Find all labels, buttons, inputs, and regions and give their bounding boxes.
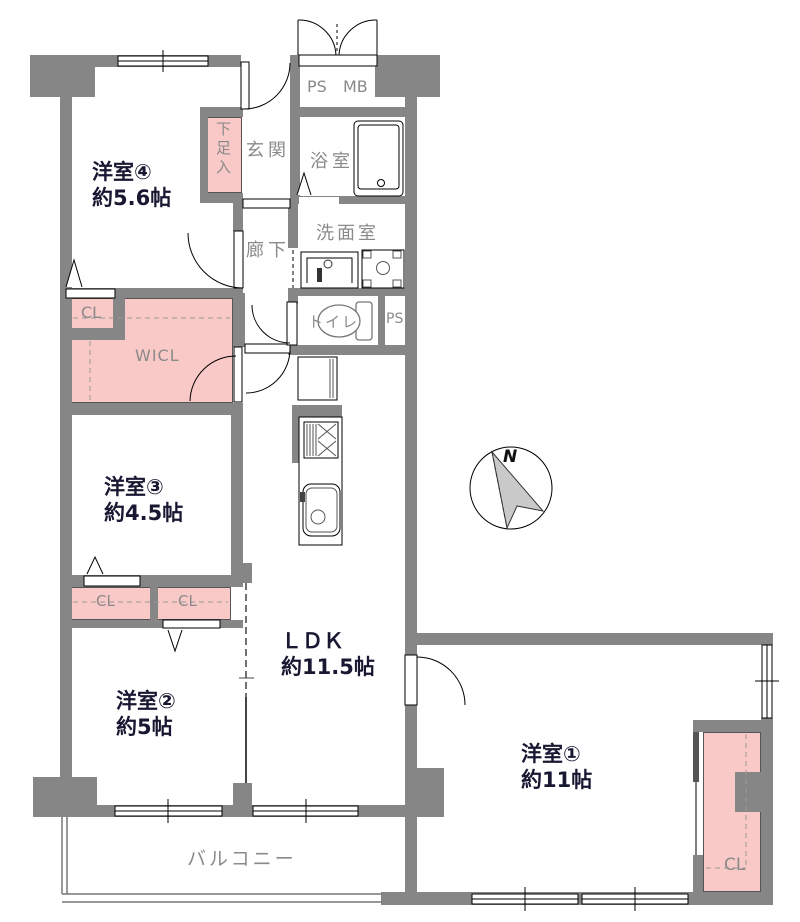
wall-segment xyxy=(288,345,408,355)
wall-segment xyxy=(405,97,417,655)
ldk-name: ＬＤＫ xyxy=(281,628,375,654)
wall-segment xyxy=(60,328,125,340)
room1-door-arc xyxy=(405,655,465,705)
shoe-cabinet-label: 下足入 xyxy=(213,121,234,178)
closet-mid-label: CL xyxy=(178,592,197,610)
genkan-label: 玄関 xyxy=(246,136,290,162)
wall-segment xyxy=(60,403,243,415)
wall-segment xyxy=(416,768,444,817)
wicl-label: WICL xyxy=(135,346,180,365)
floorplan-linework xyxy=(0,0,800,922)
refrigerator-space xyxy=(298,357,337,400)
meter-box-label: MB xyxy=(343,77,368,96)
ldk-size: 約11.5帖 xyxy=(281,654,375,680)
room3-name: 洋室③ xyxy=(104,474,183,500)
toilet-label: トイレ xyxy=(308,311,359,332)
entry-door-arc xyxy=(241,62,290,109)
wall-segment xyxy=(378,296,385,345)
washing-machine-icon xyxy=(301,252,358,288)
balcony-label: バルコニー xyxy=(187,844,297,871)
room1-closet-sliding-door xyxy=(693,732,699,855)
wall-segment xyxy=(693,855,703,892)
toilet-door-arc xyxy=(252,302,297,345)
wall-segment xyxy=(292,405,342,417)
entrance-doors xyxy=(298,20,377,66)
room1-size: 約11帖 xyxy=(521,767,592,793)
hallway-label: 廊下 xyxy=(246,236,290,262)
wall-segment xyxy=(292,107,408,117)
room2-label: 洋室② 約5帖 xyxy=(116,688,176,740)
floorplan: 洋室④ 約5.6帖 洋室③ 約4.5帖 洋室② 約5帖 ＬＤＫ 約11.5帖 洋… xyxy=(0,0,800,922)
ldk-door-arc xyxy=(245,344,290,393)
wall-segment xyxy=(235,563,252,583)
wall-segment xyxy=(60,575,243,587)
kitchen-counter-icon xyxy=(299,417,342,545)
room4-label: 洋室④ 約5.6帖 xyxy=(92,159,171,211)
wall-segment xyxy=(231,415,243,575)
wall-segment xyxy=(60,620,243,628)
wall-segment xyxy=(33,777,97,817)
wall-segment xyxy=(200,117,208,203)
ldk-label: ＬＤＫ 約11.5帖 xyxy=(281,628,375,680)
wall-segment xyxy=(97,805,420,817)
wall-segment xyxy=(200,193,243,203)
closet-upper-label: CL xyxy=(81,303,101,322)
room4-door-arc xyxy=(188,231,243,288)
wall-segment xyxy=(693,720,773,732)
wall-segment xyxy=(200,107,243,117)
window xyxy=(755,645,779,718)
wall-segment xyxy=(60,67,72,781)
room3-size: 約4.5帖 xyxy=(104,500,183,526)
room2-name: 洋室② xyxy=(116,688,176,714)
sliding-partition xyxy=(239,583,254,783)
wall-segment xyxy=(150,587,158,620)
wall-segment xyxy=(233,783,252,817)
wall-segment xyxy=(233,293,245,347)
ps-mid-label: PS xyxy=(386,311,403,327)
room1-label: 洋室① 約11帖 xyxy=(521,741,592,793)
vanity-sink-icon xyxy=(362,250,404,288)
wall-segment xyxy=(375,55,440,97)
wall-segment xyxy=(381,892,773,905)
room4-size: 約5.6帖 xyxy=(92,185,171,211)
ps-top-label: PS xyxy=(307,77,327,96)
washroom-label: 洗面室 xyxy=(316,219,379,245)
genkan-step xyxy=(243,199,290,208)
bathtub-icon xyxy=(354,121,403,196)
wall-segment xyxy=(233,203,243,231)
room3-label: 洋室③ 約4.5帖 xyxy=(104,474,183,526)
wall-segment xyxy=(416,633,773,645)
room4-name: 洋室④ xyxy=(92,159,171,185)
closet-left-label: CL xyxy=(96,592,115,610)
room2-size: 約5帖 xyxy=(116,714,176,740)
wall-segment xyxy=(296,196,408,204)
bathroom-label: 浴室 xyxy=(310,147,354,173)
wall-segment xyxy=(735,772,773,812)
closet-room1-label: CL xyxy=(724,855,745,875)
room1-name: 洋室① xyxy=(521,741,592,767)
wall-segment xyxy=(290,55,300,203)
wall-segment xyxy=(288,288,408,296)
wall-segment xyxy=(288,296,298,304)
wall-segment xyxy=(60,55,241,67)
compass-north-label: N xyxy=(503,447,517,467)
wall-segment xyxy=(292,417,302,463)
wall-segment xyxy=(60,288,243,298)
